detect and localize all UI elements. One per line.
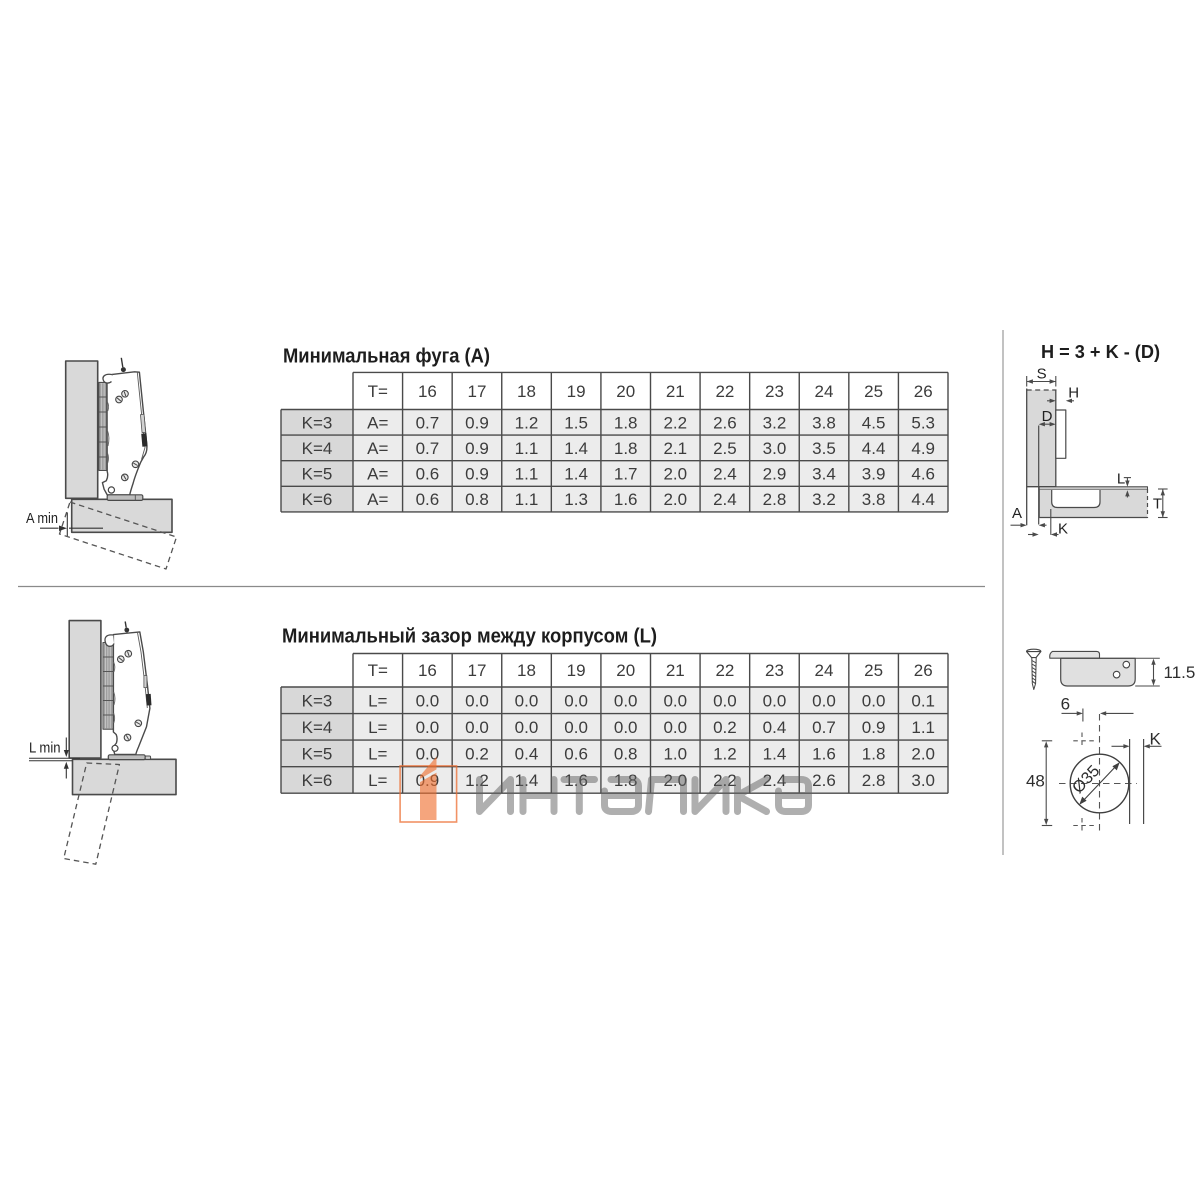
svg-text:S: S [1037, 366, 1047, 383]
svg-text:L min: L min [29, 741, 61, 757]
svg-text:T=: T= [368, 661, 388, 680]
svg-text:1.7: 1.7 [614, 465, 638, 484]
svg-text:K=3: K=3 [302, 691, 333, 710]
svg-text:2.9: 2.9 [763, 465, 787, 484]
svg-text:A=: A= [367, 439, 388, 458]
svg-text:K=6: K=6 [302, 771, 333, 790]
svg-text:0.6: 0.6 [416, 465, 440, 484]
svg-text:16: 16 [418, 661, 437, 680]
svg-text:1.6: 1.6 [614, 490, 638, 509]
svg-text:L=: L= [368, 718, 387, 737]
svg-text:0.0: 0.0 [763, 691, 787, 710]
svg-text:3.2: 3.2 [763, 413, 787, 432]
svg-text:3.8: 3.8 [812, 413, 836, 432]
svg-text:5.3: 5.3 [911, 413, 935, 432]
svg-text:0.6: 0.6 [416, 490, 440, 509]
svg-text:L=: L= [368, 771, 387, 790]
svg-text:0.9: 0.9 [465, 465, 489, 484]
svg-text:11.5: 11.5 [1164, 663, 1196, 682]
svg-text:0.0: 0.0 [416, 691, 440, 710]
svg-text:0.0: 0.0 [416, 718, 440, 737]
svg-text:0.0: 0.0 [515, 718, 539, 737]
svg-text:25: 25 [864, 382, 883, 401]
svg-text:2.6: 2.6 [713, 413, 737, 432]
svg-text:A=: A= [367, 413, 388, 432]
svg-text:0.0: 0.0 [614, 718, 638, 737]
svg-text:16: 16 [418, 382, 437, 401]
svg-text:0.7: 0.7 [812, 718, 836, 737]
svg-text:18: 18 [517, 661, 536, 680]
svg-text:0.0: 0.0 [515, 691, 539, 710]
svg-text:2.4: 2.4 [713, 465, 737, 484]
svg-text:H: H [1068, 385, 1079, 402]
svg-text:0.0: 0.0 [465, 718, 489, 737]
svg-text:L=: L= [368, 691, 387, 710]
svg-text:19: 19 [567, 382, 586, 401]
svg-text:2.8: 2.8 [763, 490, 787, 509]
svg-text:A=: A= [367, 490, 388, 509]
svg-text:K=5: K=5 [302, 744, 333, 763]
svg-text:K: K [1058, 520, 1068, 537]
svg-text:0.7: 0.7 [416, 439, 440, 458]
svg-text:0.4: 0.4 [515, 744, 539, 763]
svg-text:H = 3 + K - (D): H = 3 + K - (D) [1041, 342, 1160, 362]
svg-text:2.0: 2.0 [663, 465, 687, 484]
svg-text:0.9: 0.9 [862, 718, 886, 737]
svg-text:1.1: 1.1 [515, 465, 539, 484]
svg-text:4.4: 4.4 [911, 490, 935, 509]
svg-text:1.4: 1.4 [564, 465, 588, 484]
svg-text:0.0: 0.0 [465, 691, 489, 710]
svg-text:1.8: 1.8 [862, 744, 886, 763]
svg-text:1.5: 1.5 [564, 413, 588, 432]
svg-text:2.5: 2.5 [713, 439, 737, 458]
svg-text:4.6: 4.6 [911, 465, 935, 484]
svg-text:0.0: 0.0 [713, 691, 737, 710]
svg-text:0.2: 0.2 [465, 744, 489, 763]
svg-text:1.0: 1.0 [663, 744, 687, 763]
svg-text:K=3: K=3 [302, 413, 333, 432]
svg-text:17: 17 [468, 661, 487, 680]
svg-text:A=: A= [367, 465, 388, 484]
svg-text:1.2: 1.2 [713, 744, 737, 763]
svg-text:18: 18 [517, 382, 536, 401]
svg-text:0.0: 0.0 [614, 691, 638, 710]
svg-text:0.1: 0.1 [911, 691, 935, 710]
svg-text:1.4: 1.4 [763, 744, 787, 763]
svg-text:25: 25 [864, 661, 883, 680]
svg-text:3.8: 3.8 [862, 490, 886, 509]
svg-text:1.4: 1.4 [564, 439, 588, 458]
svg-text:0.4: 0.4 [763, 718, 787, 737]
svg-text:0.2: 0.2 [713, 718, 737, 737]
svg-text:1.8: 1.8 [614, 439, 638, 458]
svg-text:1.8: 1.8 [614, 413, 638, 432]
svg-text:0.0: 0.0 [862, 691, 886, 710]
svg-text:17: 17 [468, 382, 487, 401]
svg-text:2.0: 2.0 [663, 490, 687, 509]
svg-text:2.4: 2.4 [713, 490, 737, 509]
svg-text:2.1: 2.1 [663, 439, 687, 458]
svg-text:48: 48 [1026, 772, 1045, 791]
svg-text:K: K [1150, 730, 1162, 749]
svg-text:1.1: 1.1 [515, 439, 539, 458]
svg-text:0.8: 0.8 [614, 744, 638, 763]
svg-text:2.0: 2.0 [911, 744, 935, 763]
svg-text:0.9: 0.9 [465, 439, 489, 458]
svg-text:20: 20 [616, 382, 635, 401]
svg-text:22: 22 [715, 661, 734, 680]
svg-text:1.2: 1.2 [515, 413, 539, 432]
svg-text:0.6: 0.6 [564, 744, 588, 763]
svg-text:K=5: K=5 [302, 465, 333, 484]
svg-text:20: 20 [616, 661, 635, 680]
svg-text:T: T [1153, 496, 1162, 513]
svg-text:4.5: 4.5 [862, 413, 886, 432]
svg-text:0.0: 0.0 [812, 691, 836, 710]
svg-text:2.2: 2.2 [663, 413, 687, 432]
svg-text:21: 21 [666, 382, 685, 401]
svg-text:26: 26 [914, 382, 933, 401]
svg-text:21: 21 [666, 661, 685, 680]
svg-text:3.5: 3.5 [812, 439, 836, 458]
svg-text:1.3: 1.3 [564, 490, 588, 509]
svg-text:4.4: 4.4 [862, 439, 886, 458]
svg-text:1.1: 1.1 [515, 490, 539, 509]
svg-text:2.8: 2.8 [862, 771, 886, 790]
svg-text:3.0: 3.0 [763, 439, 787, 458]
svg-text:L=: L= [368, 744, 387, 763]
svg-text:19: 19 [567, 661, 586, 680]
svg-text:0.0: 0.0 [663, 718, 687, 737]
svg-text:Минимальный зазор между корпус: Минимальный зазор между корпусом (L) [282, 626, 657, 648]
svg-text:26: 26 [914, 661, 933, 680]
svg-text:6: 6 [1061, 695, 1070, 714]
svg-text:24: 24 [815, 661, 834, 680]
svg-text:1.1: 1.1 [911, 718, 935, 737]
svg-text:L: L [1117, 471, 1125, 488]
svg-text:1.6: 1.6 [812, 744, 836, 763]
svg-text:4.9: 4.9 [911, 439, 935, 458]
svg-text:0.0: 0.0 [564, 718, 588, 737]
svg-text:0.0: 0.0 [564, 691, 588, 710]
svg-text:3.9: 3.9 [862, 465, 886, 484]
svg-text:K=4: K=4 [302, 439, 333, 458]
svg-text:24: 24 [815, 382, 834, 401]
svg-text:A: A [1012, 505, 1022, 522]
svg-text:D: D [1042, 408, 1053, 425]
svg-text:3.0: 3.0 [911, 771, 935, 790]
svg-text:K=6: K=6 [302, 490, 333, 509]
svg-text:Минимальная фуга (A): Минимальная фуга (A) [283, 346, 490, 368]
svg-text:A min: A min [26, 511, 58, 527]
svg-text:K=4: K=4 [302, 718, 333, 737]
svg-text:3.4: 3.4 [812, 465, 836, 484]
svg-text:22: 22 [715, 382, 734, 401]
svg-text:3.2: 3.2 [812, 490, 836, 509]
svg-text:2.6: 2.6 [812, 771, 836, 790]
svg-text:23: 23 [765, 661, 784, 680]
svg-text:0.7: 0.7 [416, 413, 440, 432]
svg-text:0.0: 0.0 [663, 691, 687, 710]
svg-text:23: 23 [765, 382, 784, 401]
svg-text:0.8: 0.8 [465, 490, 489, 509]
svg-text:0.9: 0.9 [465, 413, 489, 432]
svg-text:T=: T= [368, 382, 388, 401]
